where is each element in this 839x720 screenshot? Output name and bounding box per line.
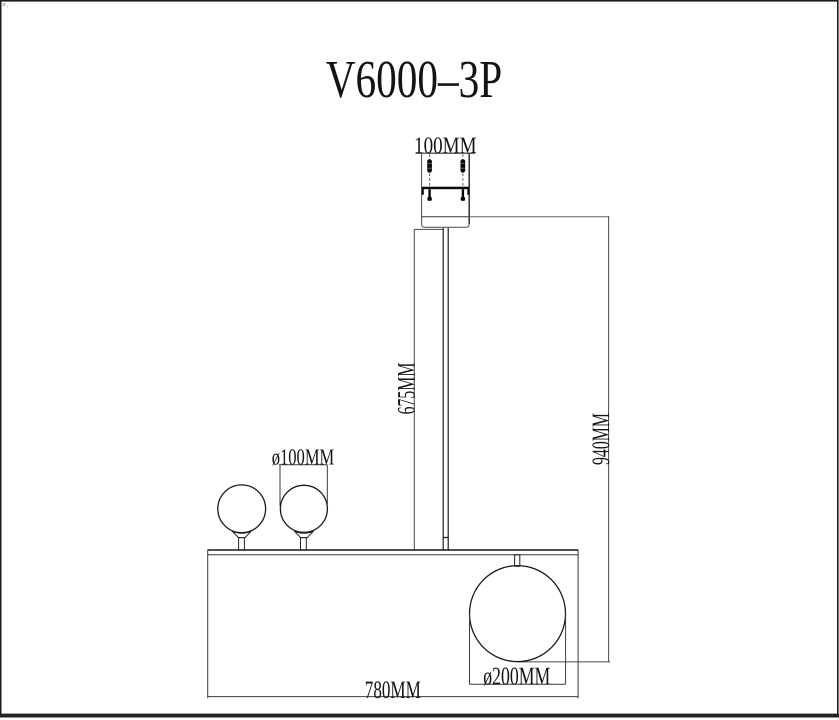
svg-text:100MM: 100MM <box>414 133 477 159</box>
svg-text:780MM: 780MM <box>365 677 421 704</box>
svg-text:ø200MM: ø200MM <box>483 661 550 690</box>
svg-text:V6000–3P: V6000–3P <box>326 49 503 109</box>
svg-text:940MM: 940MM <box>588 413 615 465</box>
svg-text:ø100MM: ø100MM <box>272 444 335 469</box>
svg-text:675MM: 675MM <box>394 363 421 415</box>
